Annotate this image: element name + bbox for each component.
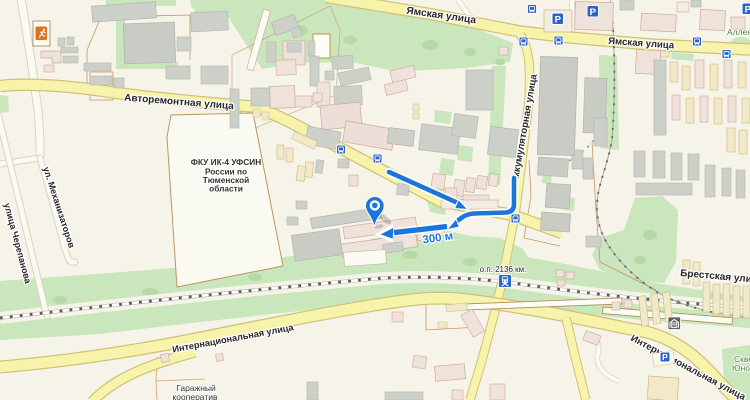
svg-text:Юнос: Юнос <box>732 363 750 373</box>
svg-text:P: P <box>555 14 562 25</box>
svg-text:P: P <box>590 7 597 18</box>
svg-text:P: P <box>662 352 668 362</box>
svg-text:кооператив: кооператив <box>172 392 218 400</box>
svg-text:Аллея: Аллея <box>727 27 750 37</box>
svg-text:о.п. 2136 км.: о.п. 2136 км. <box>480 265 527 274</box>
svg-text:P: P <box>745 4 750 15</box>
svg-text:ФКУ ИК-4 УФСИН: ФКУ ИК-4 УФСИН <box>191 157 261 167</box>
svg-text:области: области <box>209 184 243 194</box>
